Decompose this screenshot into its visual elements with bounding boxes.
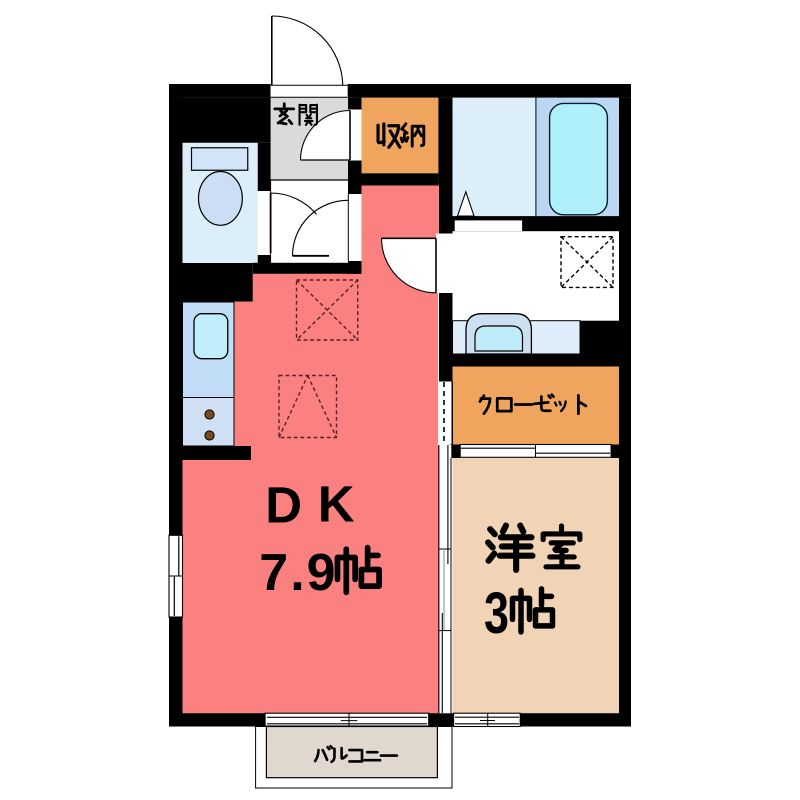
svg-text:3: 3: [484, 581, 509, 646]
svg-text:D: D: [265, 477, 302, 534]
svg-text:7.9: 7.9: [259, 544, 337, 602]
svg-text:K: K: [318, 476, 355, 533]
